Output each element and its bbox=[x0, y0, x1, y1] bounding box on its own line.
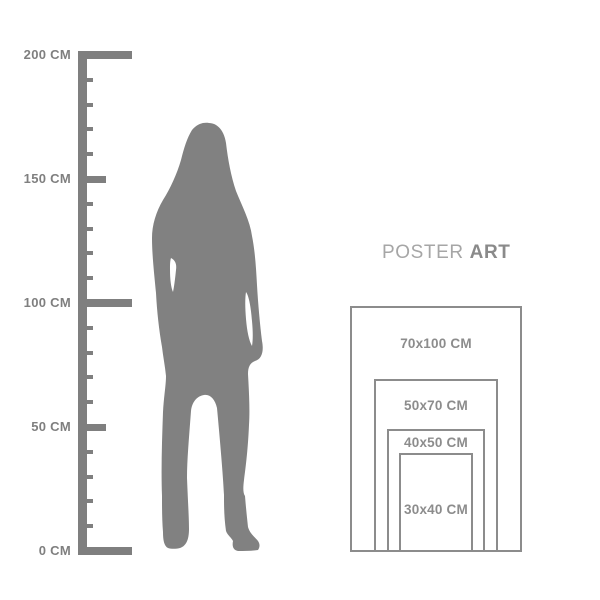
poster-size-label-50x70: 50x70 CM bbox=[366, 397, 506, 415]
poster-size-chart: 70x100 CM50x70 CM40x50 CM30x40 CM bbox=[0, 0, 600, 600]
size-guide-image: 200 CM150 CM100 CM50 CM0 CM POSTER ART 7… bbox=[0, 0, 600, 600]
poster-size-label-30x40: 30x40 CM bbox=[366, 501, 506, 519]
poster-size-label-70x100: 70x100 CM bbox=[366, 335, 506, 353]
poster-size-label-40x50: 40x50 CM bbox=[366, 434, 506, 452]
